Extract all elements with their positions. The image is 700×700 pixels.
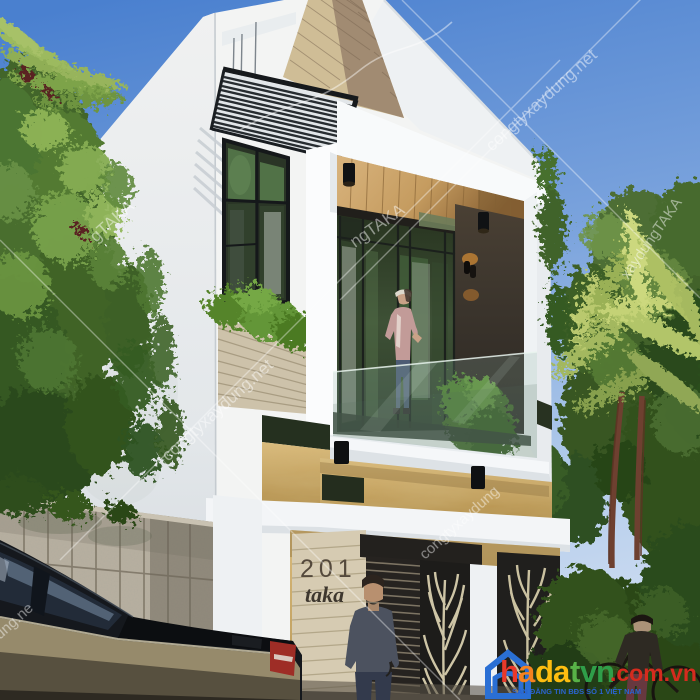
svg-text:d: d [535, 654, 554, 689]
svg-text:SÀN ĐĂNG TIN BĐS SỐ 1 VIỆT NAM: SÀN ĐĂNG TIN BĐS SỐ 1 VIỆT NAM [512, 686, 641, 696]
svg-text:t: t [570, 654, 580, 689]
svg-text:a: a [518, 654, 536, 689]
svg-text:a: a [553, 654, 571, 689]
svg-text:taka: taka [305, 582, 344, 607]
svg-text:h: h [500, 654, 519, 689]
svg-text:.com.vn: .com.vn [610, 660, 697, 686]
